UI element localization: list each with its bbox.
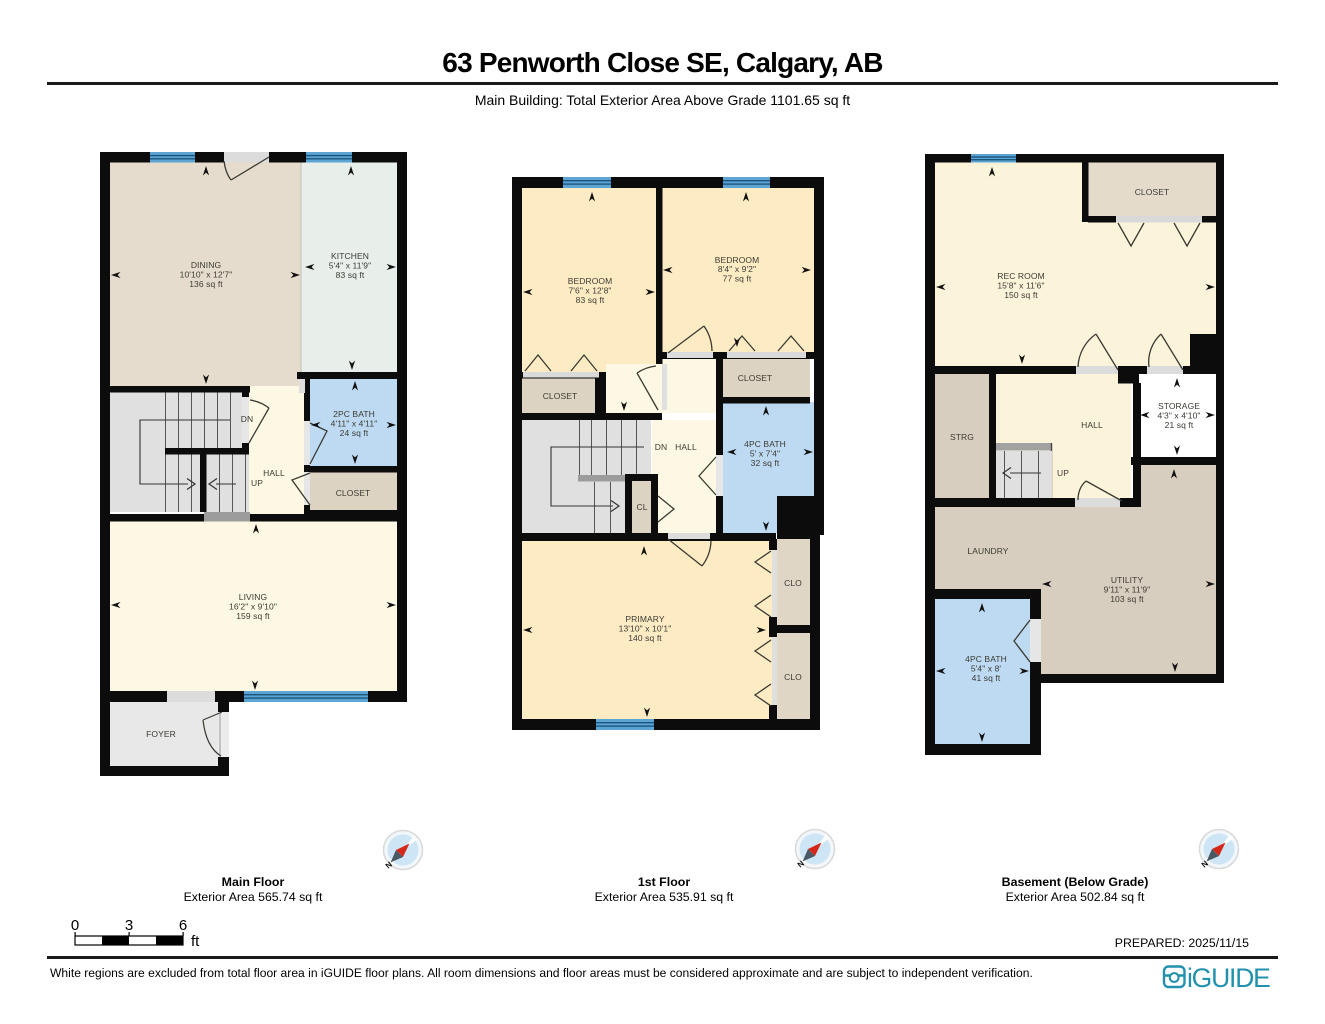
svg-text:STRG: STRG — [950, 432, 974, 442]
svg-text:CLOSET: CLOSET — [1135, 187, 1170, 197]
svg-text:FOYER: FOYER — [146, 729, 176, 739]
svg-text:15'8" x 11'6": 15'8" x 11'6" — [997, 281, 1044, 291]
svg-text:4PC BATH: 4PC BATH — [965, 654, 1007, 664]
svg-text:140 sq ft: 140 sq ft — [628, 633, 662, 643]
svg-text:UTILITY: UTILITY — [1111, 575, 1144, 585]
svg-text:iGUIDE: iGUIDE — [1187, 963, 1270, 993]
svg-text:2PC BATH: 2PC BATH — [333, 409, 375, 419]
svg-text:8'4" x 9'2": 8'4" x 9'2" — [718, 264, 756, 274]
svg-text:159 sq ft: 159 sq ft — [236, 611, 270, 621]
svg-text:Basement (Below Grade): Basement (Below Grade) — [1002, 875, 1149, 889]
svg-text:KITCHEN: KITCHEN — [331, 251, 369, 261]
svg-text:DN: DN — [241, 414, 253, 424]
svg-text:Exterior Area 502.84 sq ft: Exterior Area 502.84 sq ft — [1006, 890, 1145, 904]
svg-text:DINING: DINING — [191, 260, 221, 270]
svg-text:CLOSET: CLOSET — [336, 488, 371, 498]
svg-text:136 sq ft: 136 sq ft — [189, 279, 223, 289]
svg-text:Main Floor: Main Floor — [222, 875, 285, 889]
svg-text:9'11" x 11'9": 9'11" x 11'9" — [1104, 585, 1151, 595]
svg-text:24 sq ft: 24 sq ft — [340, 428, 369, 438]
svg-text:4'3" x 4'10": 4'3" x 4'10" — [1157, 411, 1200, 421]
svg-text:5' x 7'4": 5' x 7'4" — [750, 449, 780, 459]
svg-text:7'6" x 12'8": 7'6" x 12'8" — [568, 286, 611, 296]
svg-text:White regions are excluded fro: White regions are excluded from total fl… — [50, 966, 1033, 980]
svg-text:1st Floor: 1st Floor — [638, 875, 690, 889]
svg-text:13'10" x 10'1": 13'10" x 10'1" — [619, 624, 672, 634]
svg-text:4'11" x 4'11": 4'11" x 4'11" — [331, 419, 378, 429]
svg-text:150 sq ft: 150 sq ft — [1004, 290, 1038, 300]
svg-text:10'10" x 12'7": 10'10" x 12'7" — [180, 270, 233, 280]
svg-text:HALL: HALL — [263, 468, 285, 478]
svg-text:DN: DN — [655, 442, 667, 452]
svg-text:83 sq ft: 83 sq ft — [336, 270, 365, 280]
svg-text:BEDROOM: BEDROOM — [568, 276, 613, 286]
svg-text:103 sq ft: 103 sq ft — [1110, 594, 1144, 604]
svg-text:41 sq ft: 41 sq ft — [972, 673, 1001, 683]
svg-text:3: 3 — [125, 917, 133, 934]
svg-text:CLO: CLO — [784, 672, 802, 682]
svg-text:STORAGE: STORAGE — [1158, 401, 1200, 411]
svg-text:PREPARED: 2025/11/15: PREPARED: 2025/11/15 — [1115, 936, 1249, 950]
svg-text:CLO: CLO — [784, 578, 802, 588]
svg-text:Exterior Area 565.74 sq ft: Exterior Area 565.74 sq ft — [184, 890, 323, 904]
svg-text:21 sq ft: 21 sq ft — [1165, 420, 1194, 430]
svg-text:CL: CL — [636, 502, 647, 512]
svg-text:LAUNDRY: LAUNDRY — [967, 546, 1008, 556]
svg-text:4PC BATH: 4PC BATH — [744, 439, 786, 449]
svg-text:UP: UP — [1057, 468, 1069, 478]
svg-text:16'2" x 9'10": 16'2" x 9'10" — [229, 602, 277, 612]
svg-text:HALL: HALL — [675, 442, 697, 452]
svg-text:0: 0 — [71, 917, 79, 934]
svg-text:77 sq ft: 77 sq ft — [723, 274, 752, 284]
svg-text:6: 6 — [179, 917, 187, 934]
svg-text:5'4" x 8': 5'4" x 8' — [971, 664, 1002, 674]
svg-text:HALL: HALL — [1081, 420, 1103, 430]
svg-text:PRIMARY: PRIMARY — [625, 614, 665, 624]
svg-text:CLOSET: CLOSET — [543, 391, 578, 401]
svg-text:5'4" x 11'9": 5'4" x 11'9" — [329, 261, 371, 271]
svg-text:83 sq ft: 83 sq ft — [576, 295, 605, 305]
svg-text:ft: ft — [191, 933, 200, 950]
svg-text:Exterior Area 535.91 sq ft: Exterior Area 535.91 sq ft — [595, 890, 734, 904]
svg-text:UP: UP — [251, 478, 263, 488]
svg-text:REC ROOM: REC ROOM — [997, 271, 1045, 281]
svg-text:32 sq ft: 32 sq ft — [751, 458, 780, 468]
svg-text:CLOSET: CLOSET — [738, 373, 773, 383]
svg-text:LIVING: LIVING — [239, 592, 267, 602]
